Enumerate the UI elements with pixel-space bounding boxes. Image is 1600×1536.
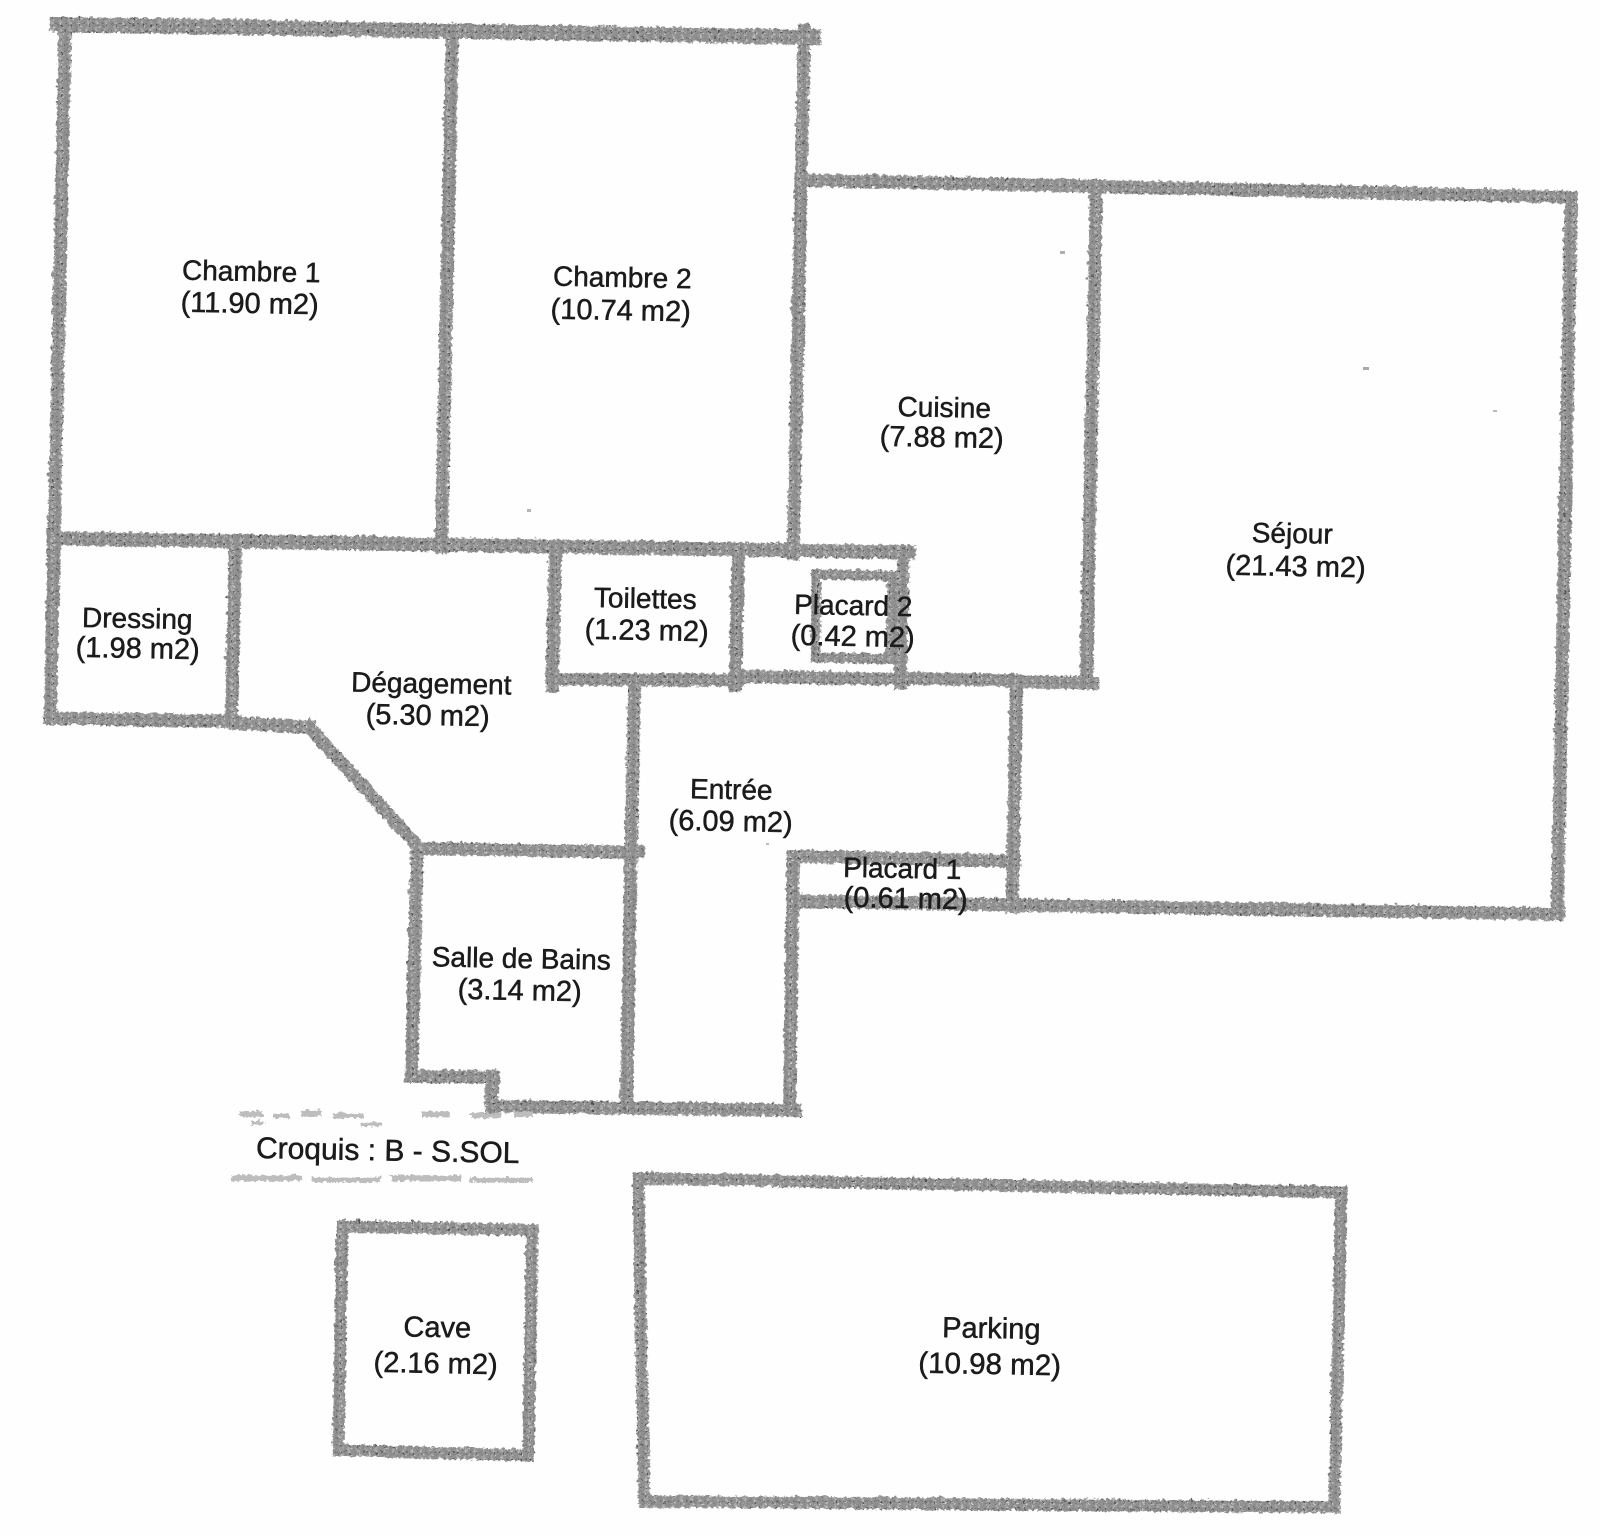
svg-text:Placard 2: Placard 2 [794, 589, 913, 622]
svg-text:(11.90 m2): (11.90 m2) [180, 287, 319, 322]
svg-text:(5.30 m2): (5.30 m2) [365, 699, 490, 733]
svg-text:(1.98 m2): (1.98 m2) [75, 632, 200, 666]
svg-text:(3.14 m2): (3.14 m2) [457, 974, 582, 1008]
svg-text:Cuisine: Cuisine [897, 391, 991, 424]
svg-text:(10.74 m2): (10.74 m2) [550, 294, 691, 329]
svg-text:(2.16 m2): (2.16 m2) [373, 1347, 498, 1381]
svg-text:Cave: Cave [403, 1311, 471, 1344]
svg-text:(10.98 m2): (10.98 m2) [918, 1347, 1061, 1383]
svg-text:(21.43 m2): (21.43 m2) [1225, 550, 1366, 585]
svg-text:Placard 1: Placard 1 [843, 852, 962, 885]
svg-text:(0.42 m2): (0.42 m2) [790, 620, 915, 654]
svg-text:Chambre 1: Chambre 1 [182, 255, 321, 289]
svg-text:(0.61 m2): (0.61 m2) [843, 882, 968, 916]
svg-text:Toilettes: Toilettes [594, 582, 697, 615]
svg-text:Croquis : B - S.SOL: Croquis : B - S.SOL [256, 1132, 520, 1170]
svg-text:Dégagement: Dégagement [351, 666, 512, 700]
svg-text:(6.09 m2): (6.09 m2) [668, 805, 793, 839]
svg-text:(1.23 m2): (1.23 m2) [584, 614, 709, 648]
svg-text:Séjour: Séjour [1252, 517, 1334, 550]
svg-text:Salle de Bains: Salle de Bains [432, 941, 612, 975]
svg-text:Parking: Parking [942, 1312, 1041, 1346]
svg-text:Chambre 2: Chambre 2 [553, 261, 692, 295]
svg-text:Entrée: Entrée [690, 773, 773, 806]
svg-text:Dressing: Dressing [82, 602, 193, 635]
svg-text:(7.88 m2): (7.88 m2) [879, 421, 1004, 455]
